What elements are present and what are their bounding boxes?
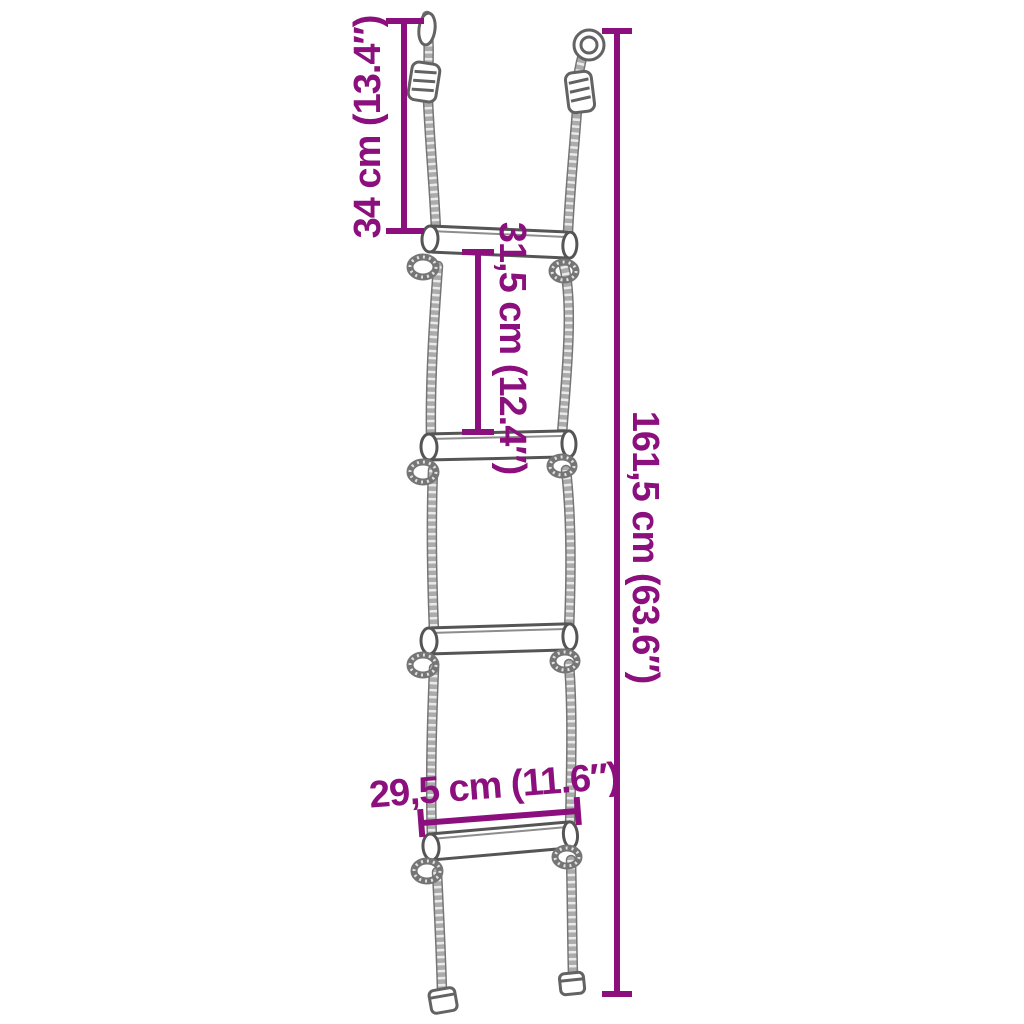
- product-dimension-diagram: 34 cm (13.4″) 31,5 cm (12.4″) 161,5 cm (…: [0, 0, 1024, 1024]
- dimension-line-rung-spacing: [462, 252, 494, 432]
- rope-ladder-illustration: [0, 0, 1024, 1024]
- dimension-label-rung-spacing: 31,5 cm (12.4″): [493, 222, 531, 474]
- dimension-label-hanger-to-first-rung: 34 cm (13.4″): [349, 16, 387, 239]
- rope-end-caps: [428, 972, 585, 1014]
- dimension-line-hanger-to-first-rung: [386, 21, 424, 231]
- dimension-label-total-length: 161,5 cm (63.6″): [626, 411, 664, 684]
- rung-3: [421, 624, 578, 655]
- right-hanger-ring: [565, 30, 604, 113]
